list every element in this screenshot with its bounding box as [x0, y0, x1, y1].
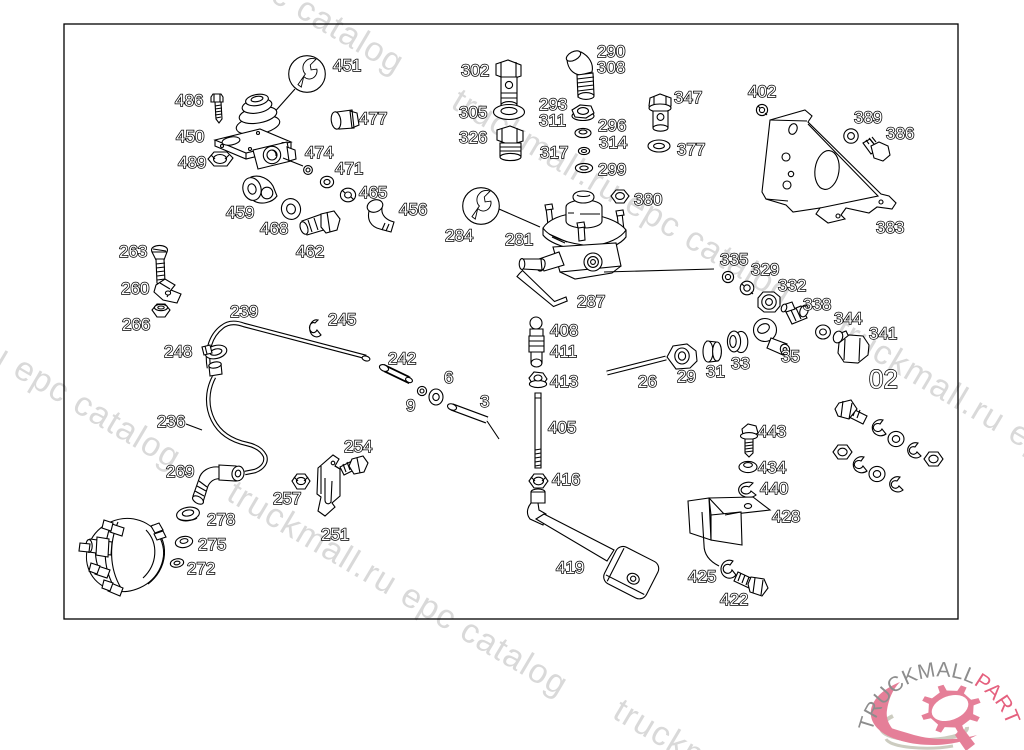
svg-text:383: 383: [876, 218, 904, 237]
svg-text:299: 299: [598, 160, 626, 179]
svg-text:341: 341: [869, 324, 897, 343]
svg-text:311: 311: [539, 111, 566, 130]
svg-text:308: 308: [597, 58, 625, 77]
svg-text:428: 428: [772, 507, 800, 526]
svg-text:29: 29: [677, 367, 696, 386]
svg-text:416: 416: [552, 470, 580, 489]
svg-text:347: 347: [674, 88, 702, 107]
svg-text:389: 389: [854, 108, 882, 127]
svg-text:413: 413: [550, 372, 578, 391]
svg-text:408: 408: [550, 321, 578, 340]
svg-text:263: 263: [119, 242, 147, 261]
svg-text:425: 425: [688, 567, 716, 586]
svg-text:462: 462: [296, 242, 324, 261]
svg-text:33: 33: [731, 354, 750, 373]
svg-text:402: 402: [748, 82, 776, 101]
svg-text:471: 471: [335, 159, 363, 178]
svg-text:287: 287: [577, 292, 605, 311]
svg-text:248: 248: [164, 342, 192, 361]
svg-text:284: 284: [445, 226, 473, 245]
svg-text:26: 26: [638, 372, 657, 391]
svg-text:245: 245: [328, 310, 356, 329]
svg-text:411: 411: [550, 342, 577, 361]
svg-text:281: 281: [505, 230, 533, 249]
svg-text:332: 332: [778, 276, 806, 295]
svg-text:380: 380: [634, 190, 662, 209]
svg-text:459: 459: [226, 203, 254, 222]
svg-text:405: 405: [548, 418, 576, 437]
svg-text:6: 6: [444, 368, 453, 387]
svg-text:260: 260: [121, 279, 149, 298]
svg-text:377: 377: [677, 140, 705, 159]
svg-text:254: 254: [344, 437, 372, 456]
svg-text:236: 236: [157, 412, 185, 431]
svg-text:302: 302: [461, 61, 489, 80]
svg-text:434: 434: [758, 458, 786, 477]
svg-text:344: 344: [834, 309, 862, 328]
svg-text:326: 326: [459, 128, 487, 147]
svg-text:317: 317: [540, 143, 568, 162]
svg-text:02: 02: [869, 364, 898, 394]
svg-text:338: 338: [803, 295, 831, 314]
svg-text:443: 443: [758, 422, 786, 441]
svg-text:9: 9: [406, 396, 415, 415]
svg-text:3: 3: [480, 392, 489, 411]
svg-text:386: 386: [886, 124, 914, 143]
svg-text:477: 477: [359, 109, 387, 128]
svg-text:272: 272: [187, 559, 215, 578]
svg-text:314: 314: [599, 133, 627, 152]
svg-text:450: 450: [176, 127, 204, 146]
svg-text:451: 451: [333, 56, 361, 75]
svg-text:305: 305: [459, 103, 487, 122]
svg-text:422: 422: [720, 590, 748, 609]
svg-text:242: 242: [388, 349, 416, 368]
svg-text:465: 465: [359, 183, 387, 202]
svg-text:239: 239: [230, 302, 258, 321]
svg-text:489: 489: [178, 153, 206, 172]
svg-text:275: 275: [198, 535, 226, 554]
svg-text:269: 269: [166, 462, 194, 481]
svg-text:266: 266: [122, 315, 150, 334]
svg-text:35: 35: [781, 347, 800, 366]
svg-text:486: 486: [175, 91, 203, 110]
svg-text:468: 468: [260, 219, 288, 238]
svg-text:474: 474: [305, 143, 333, 162]
svg-text:335: 335: [720, 250, 748, 269]
svg-text:31: 31: [706, 362, 725, 381]
svg-text:257: 257: [273, 489, 301, 508]
svg-text:456: 456: [399, 200, 427, 219]
svg-text:329: 329: [751, 260, 779, 279]
svg-text:419: 419: [556, 558, 584, 577]
svg-text:440: 440: [760, 479, 788, 498]
svg-text:251: 251: [321, 525, 349, 544]
svg-text:278: 278: [207, 510, 235, 529]
